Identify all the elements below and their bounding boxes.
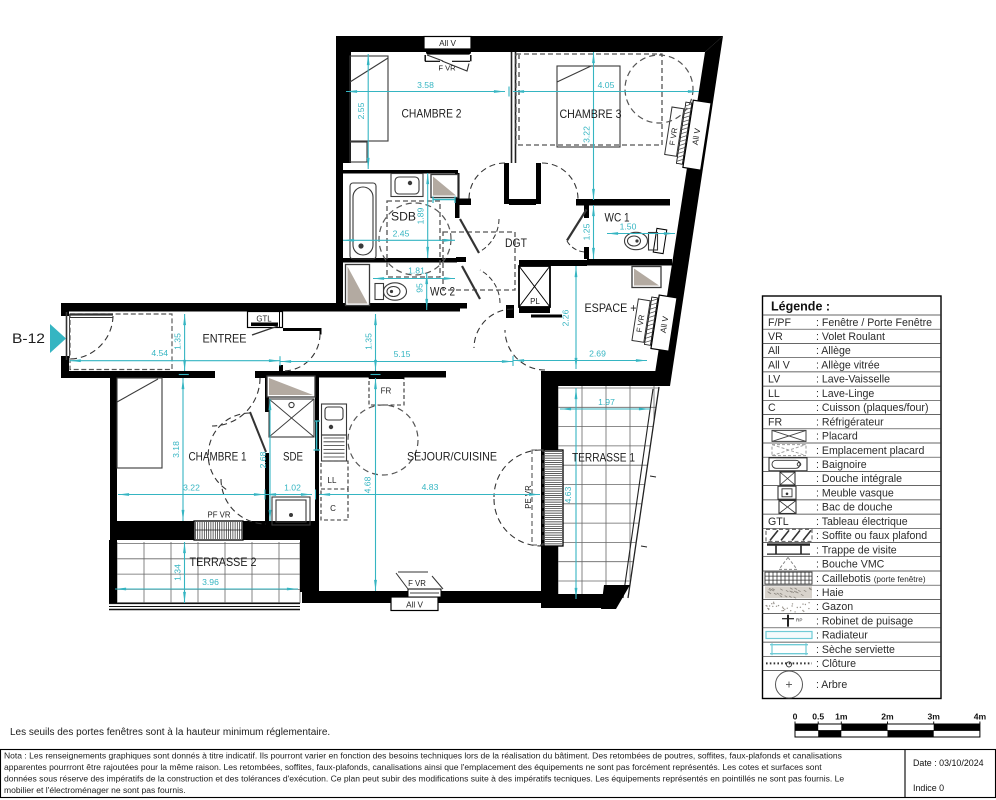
svg-text:WC 1: WC 1 (605, 211, 630, 225)
svg-text:: Douche intégrale: : Douche intégrale (816, 473, 902, 485)
svg-text:4.54: 4.54 (151, 348, 168, 358)
svg-text:3.22: 3.22 (183, 483, 200, 493)
svg-text:2m: 2m (881, 712, 894, 722)
svg-text:SEJOUR/CUISINE: SEJOUR/CUISINE (407, 450, 497, 464)
svg-text:2.68: 2.68 (258, 451, 268, 468)
svg-text:4.83: 4.83 (422, 482, 439, 492)
svg-text:LL: LL (328, 476, 337, 485)
svg-text:C: C (330, 504, 336, 513)
svg-text:All V: All V (439, 39, 456, 48)
svg-text:4m: 4m (974, 712, 987, 722)
svg-text:All: All (768, 345, 780, 357)
svg-text:: Arbre: : Arbre (816, 679, 847, 691)
svg-text:: Meuble vasque: : Meuble vasque (816, 487, 894, 499)
svg-text:: Sèche serviette: : Sèche serviette (816, 644, 895, 656)
svg-text:1.25: 1.25 (582, 223, 592, 240)
svg-text:Indice 0: Indice 0 (913, 783, 944, 793)
svg-text:2.55: 2.55 (356, 102, 366, 119)
svg-text:3.96: 3.96 (202, 577, 219, 587)
svg-text:: Gazon: : Gazon (816, 601, 853, 613)
svg-text:: Bouche VMC: : Bouche VMC (816, 559, 885, 571)
svg-text:4.05: 4.05 (598, 80, 615, 90)
svg-text:PF VR: PF VR (208, 511, 231, 520)
svg-text:: Fenêtre / Porte Fenêtre: : Fenêtre / Porte Fenêtre (816, 317, 932, 329)
svg-text:données sous réserve des impér: données sous réserve des impératifs de l… (4, 774, 844, 784)
svg-text:3m: 3m (927, 712, 940, 722)
svg-text:: Placard: : Placard (816, 431, 858, 443)
svg-text:3.22: 3.22 (582, 126, 592, 143)
svg-text:1.02: 1.02 (284, 483, 301, 493)
svg-text:PE VR: PE VR (524, 485, 533, 509)
svg-text:LV: LV (768, 374, 781, 386)
svg-text:GTL: GTL (256, 315, 272, 324)
svg-text:mobilier et l'électroménager n: mobilier et l'électroménager ne sont pas… (4, 785, 186, 795)
svg-text:1.34: 1.34 (173, 564, 183, 581)
svg-text:4.63: 4.63 (563, 486, 573, 503)
svg-text:1m: 1m (835, 712, 848, 722)
svg-text:3.18: 3.18 (171, 441, 181, 458)
svg-text:FR: FR (768, 416, 782, 428)
svg-text:: Trappe de visite: : Trappe de visite (816, 544, 897, 556)
svg-text:F VR: F VR (408, 579, 426, 588)
svg-text:1.81: 1.81 (408, 266, 425, 276)
svg-text:LL: LL (768, 388, 780, 400)
svg-text:FR: FR (381, 387, 392, 396)
svg-text:: Bac de douche: : Bac de douche (816, 502, 893, 514)
svg-text:TERRASSE 1: TERRASSE 1 (572, 451, 635, 465)
svg-text:2.69: 2.69 (589, 349, 606, 359)
svg-text:WC 2: WC 2 (430, 285, 455, 299)
svg-text:1.97: 1.97 (598, 397, 615, 407)
svg-text:F VR: F VR (438, 64, 456, 73)
svg-text:apparentes pourrront être rajo: apparentes pourrront être rajoutées pour… (4, 762, 822, 772)
svg-text:4.68: 4.68 (363, 476, 373, 493)
svg-text:: Emplacement placard: : Emplacement placard (816, 445, 924, 457)
svg-text:: Cuisson (plaques/four): : Cuisson (plaques/four) (816, 402, 928, 414)
svg-text:3.58: 3.58 (417, 80, 434, 90)
svg-text:1.35: 1.35 (364, 333, 374, 350)
svg-text:95: 95 (415, 283, 425, 293)
svg-text:5.15: 5.15 (394, 349, 411, 359)
svg-text:: Robinet de puisage: : Robinet de puisage (816, 615, 913, 627)
svg-text:TERRASSE 2: TERRASSE 2 (190, 555, 257, 569)
svg-text:: Lave-Linge: : Lave-Linge (816, 388, 874, 400)
svg-text:CHAMBRE 3: CHAMBRE 3 (560, 107, 622, 121)
svg-text:: Réfrigérateur: : Réfrigérateur (816, 416, 884, 428)
svg-text:0.5: 0.5 (812, 712, 824, 722)
svg-text:1.35: 1.35 (173, 333, 183, 350)
svg-text:: Soffite ou faux plafond: : Soffite ou faux plafond (816, 530, 927, 542)
svg-text:SDE: SDE (283, 450, 303, 464)
svg-text:GTL: GTL (768, 516, 789, 528)
svg-text:All V: All V (406, 601, 423, 610)
svg-text:ESPACE +: ESPACE + (585, 301, 637, 315)
svg-text:C: C (768, 402, 776, 414)
svg-text:0: 0 (793, 712, 798, 722)
svg-text:: Haie: : Haie (816, 587, 844, 599)
svg-text:All V: All V (768, 360, 791, 372)
svg-text:: Volet Roulant: : Volet Roulant (816, 331, 885, 343)
svg-text:2.45: 2.45 (393, 229, 410, 239)
svg-text:: Caillebotis (porte fenêtre): : Caillebotis (porte fenêtre) (816, 573, 926, 585)
svg-text:DGT: DGT (505, 236, 528, 250)
svg-text:: Clôture: : Clôture (816, 658, 856, 670)
svg-text:CHAMBRE 1: CHAMBRE 1 (189, 450, 247, 464)
svg-text:Légende :: Légende : (771, 300, 830, 314)
svg-text:Date : 03/10/2024: Date : 03/10/2024 (913, 758, 984, 768)
svg-text:: Radiateur: : Radiateur (816, 630, 868, 642)
svg-text:PL: PL (530, 297, 540, 306)
svg-text:ENTREE: ENTREE (203, 332, 247, 346)
svg-text:B-12: B-12 (12, 331, 45, 346)
svg-text:2.26: 2.26 (561, 309, 571, 326)
svg-text:Les seuils des portes fenêtres: Les seuils des portes fenêtres sont à la… (10, 727, 330, 738)
svg-text:Nota : Les renseignements grap: Nota : Les renseignements graphiques son… (4, 751, 842, 761)
svg-text:: Tableau électrique: : Tableau électrique (816, 516, 908, 528)
svg-text:: Baignoire: : Baignoire (816, 459, 867, 471)
svg-text:: Allège vitrée: : Allège vitrée (816, 360, 880, 372)
svg-text:: Allège: : Allège (816, 345, 851, 357)
svg-text:VR: VR (768, 331, 783, 343)
svg-text:1.89: 1.89 (416, 207, 426, 224)
svg-text:: Lave-Vaisselle: : Lave-Vaisselle (816, 374, 890, 386)
svg-text:CHAMBRE 2: CHAMBRE 2 (402, 107, 462, 121)
svg-text:SDB: SDB (391, 210, 416, 224)
svg-text:F/PF: F/PF (768, 317, 791, 329)
svg-text:RP: RP (796, 618, 802, 623)
